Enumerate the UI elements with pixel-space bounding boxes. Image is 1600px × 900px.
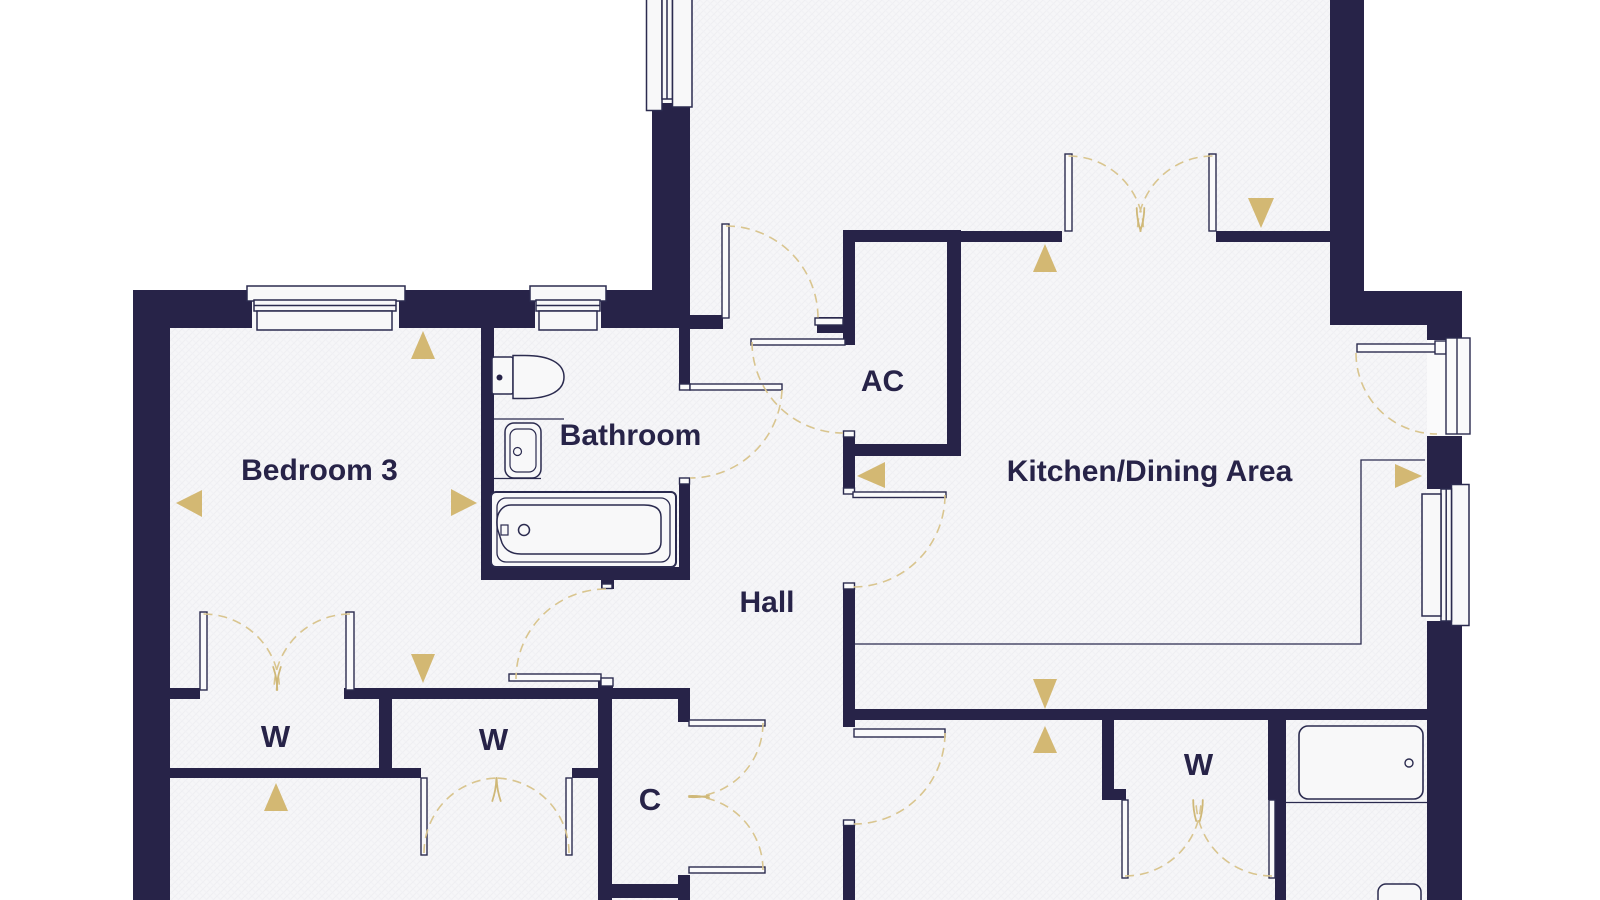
svg-text:W: W: [1184, 747, 1214, 782]
svg-text:Hall: Hall: [739, 586, 794, 619]
svg-text:W: W: [479, 722, 509, 757]
svg-text:W: W: [261, 719, 291, 754]
svg-text:Kitchen/Dining Area: Kitchen/Dining Area: [1007, 455, 1293, 488]
svg-text:C: C: [639, 782, 661, 817]
svg-text:Bedroom 3: Bedroom 3: [241, 454, 398, 487]
svg-text:AC: AC: [861, 365, 904, 398]
svg-text:Bathroom: Bathroom: [560, 419, 702, 452]
